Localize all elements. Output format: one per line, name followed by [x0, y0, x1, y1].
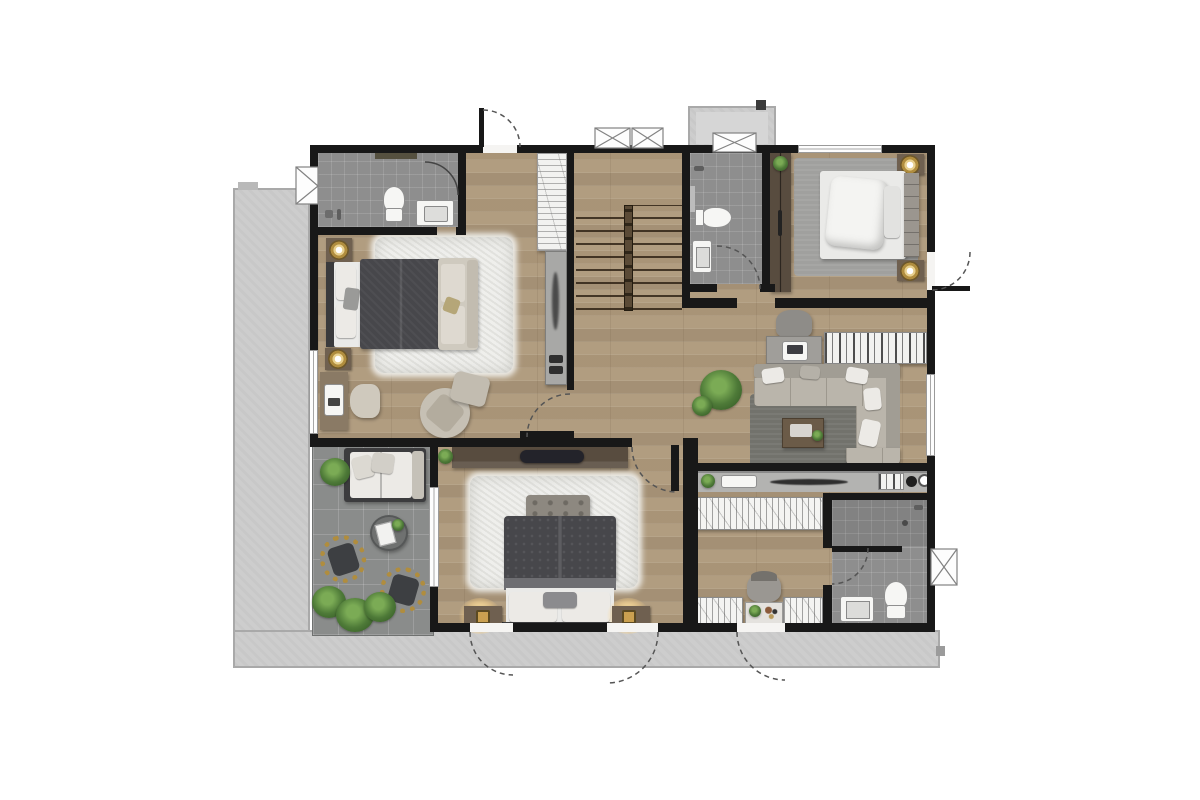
master-door-threshold-left: [470, 623, 513, 632]
shower-glyph-um: [694, 166, 704, 171]
bed-ur-headboard: [904, 173, 919, 257]
console-decor-streak: [552, 272, 559, 330]
toilet-lr-tank: [886, 605, 906, 619]
bathroom-accessory-glyph: [325, 210, 333, 218]
laptop-ul-screen: [328, 398, 340, 406]
balcony-ledge-left: [233, 188, 310, 655]
master-bed-duvet: [504, 516, 616, 580]
console-knob-1: [549, 355, 563, 363]
shower-knob-lr: [902, 520, 908, 526]
sofa-chaise: [846, 448, 900, 464]
sink-upper-left-basin: [424, 206, 448, 222]
wardrobe-plant: [773, 156, 788, 171]
toilet-um-bowl: [702, 207, 732, 228]
loveseat-ul-back: [467, 260, 478, 348]
family-desk-chair: [776, 310, 812, 338]
shower-zone: [832, 500, 927, 548]
sofa-pillow-2: [799, 365, 820, 380]
counter-knob-dark: [906, 476, 917, 487]
wall-master-top: [430, 438, 632, 447]
coffee-table-plant: [812, 430, 823, 441]
master-door-threshold-right: [607, 623, 658, 632]
master-tv: [520, 450, 584, 463]
floor-plan-canvas: [0, 0, 1200, 800]
ledge-tick: [936, 646, 945, 656]
gold-lamp-ul-bottom: [328, 349, 348, 369]
terrace-table-plant: [392, 519, 404, 531]
console-knob-2: [549, 366, 563, 374]
stair-flight-right: [633, 205, 682, 310]
shower-head-glyph: [337, 209, 341, 220]
closet-wardrobe-bottom-right: [783, 597, 823, 625]
vanity-plant: [749, 605, 761, 617]
wall-hall-closet-vertical: [683, 438, 698, 630]
window-family-right: [926, 374, 935, 456]
family-bookshelf: [824, 332, 927, 364]
counter-tray: [721, 475, 757, 488]
wall-right-seg-1: [927, 145, 935, 252]
sofa-pillow-1: [761, 367, 785, 385]
counter-decor-long: [770, 479, 848, 485]
counter-books: [878, 473, 904, 490]
family-plant-small: [692, 396, 712, 416]
bedroom-ur-door-threshold: [927, 252, 935, 290]
stair-center-railing: [624, 205, 633, 311]
grab-bar-um: [690, 186, 695, 212]
window-bedroom-ur-top: [798, 145, 882, 153]
wall-right-seg-3: [927, 456, 935, 630]
desk-chair-ul: [350, 384, 380, 418]
master-lamp-right: [622, 610, 636, 624]
wall-bottom-seg-2: [513, 623, 607, 632]
vanity-stool-back: [751, 571, 777, 581]
loveseat-ul-cushion-1: [441, 264, 465, 302]
master-lamp-left: [476, 610, 490, 624]
balcony-upper-right-inner: [696, 112, 768, 144]
entry-door-leaf: [479, 108, 484, 147]
toilet-upper-left-tank: [385, 208, 403, 222]
gold-lamp-ur-bottom: [900, 261, 920, 281]
wall-wardrobe: [762, 153, 770, 292]
toilet-um-tank: [695, 209, 704, 226]
wall-bottom-seg-4: [785, 623, 935, 632]
balcony-wall-stub: [756, 100, 766, 110]
wall-bathroom-lr-left-1: [823, 493, 832, 548]
bed-ul-duvet: [360, 259, 442, 349]
wall-stair-left: [567, 145, 574, 390]
wall-family-closet-divider: [698, 463, 927, 471]
wall-bathroom-lr-top: [823, 493, 927, 500]
outdoor-sofa-arm: [412, 451, 424, 499]
sink-um-basin: [696, 247, 710, 268]
wall-left-upper: [310, 145, 318, 350]
wall-shower-divider: [832, 546, 902, 552]
bed-ur-side-pillow: [884, 186, 900, 238]
entry-door-arc: [483, 110, 520, 147]
linen-shelf: [537, 153, 567, 251]
sofa-pillow-4: [863, 387, 882, 411]
ledge-notch: [238, 182, 258, 190]
counter-plant: [701, 474, 715, 488]
bed-ul-throw-pillow: [343, 287, 361, 311]
entry-door-threshold: [483, 145, 517, 153]
sink-lr-basin: [846, 601, 870, 619]
coffee-table-tray: [790, 424, 812, 437]
bedroom-ur-door-leaf: [932, 286, 970, 291]
vanity-cosmetics: [765, 606, 779, 620]
shower-glyph-lr: [914, 505, 923, 510]
bathroom-shelf: [375, 153, 417, 159]
wall-bedroom-ul-bottom: [310, 438, 438, 447]
wall-bedroom-ur-bottom-2: [775, 298, 930, 308]
terrace-plant-bottom-3: [364, 592, 396, 622]
stair-flight-left: [576, 211, 624, 310]
wall-stair-right: [682, 145, 690, 308]
outdoor-sofa-pillow-2: [371, 452, 396, 475]
wall-bathroom-um-bottom-1: [690, 284, 717, 292]
wall-bathroom-ul-right: [458, 145, 466, 235]
window-bedroom-ul-left: [309, 350, 318, 434]
wall-bedroom-ur-bottom-1: [690, 298, 737, 308]
gold-lamp-ul-top: [329, 240, 349, 260]
master-dresser-plant: [438, 449, 453, 464]
terrace-plant-top: [320, 458, 350, 486]
closet-door-threshold: [737, 623, 785, 632]
closet-wardrobe-top: [693, 497, 823, 530]
bedroom-ur-door-arc: [932, 252, 970, 290]
master-door-leaf: [671, 445, 679, 491]
wall-bathroom-lr-left-2: [823, 585, 832, 630]
terrace-glass-door: [429, 487, 439, 587]
family-laptop-screen: [787, 345, 803, 354]
master-lumbar-pillow: [543, 592, 577, 608]
wall-bathroom-ul-bottom-1: [310, 227, 437, 235]
closet-wardrobe-bottom-left: [693, 597, 743, 625]
bed-ur-duvet-pillow: [825, 175, 890, 251]
wardrobe-handle: [778, 210, 782, 236]
